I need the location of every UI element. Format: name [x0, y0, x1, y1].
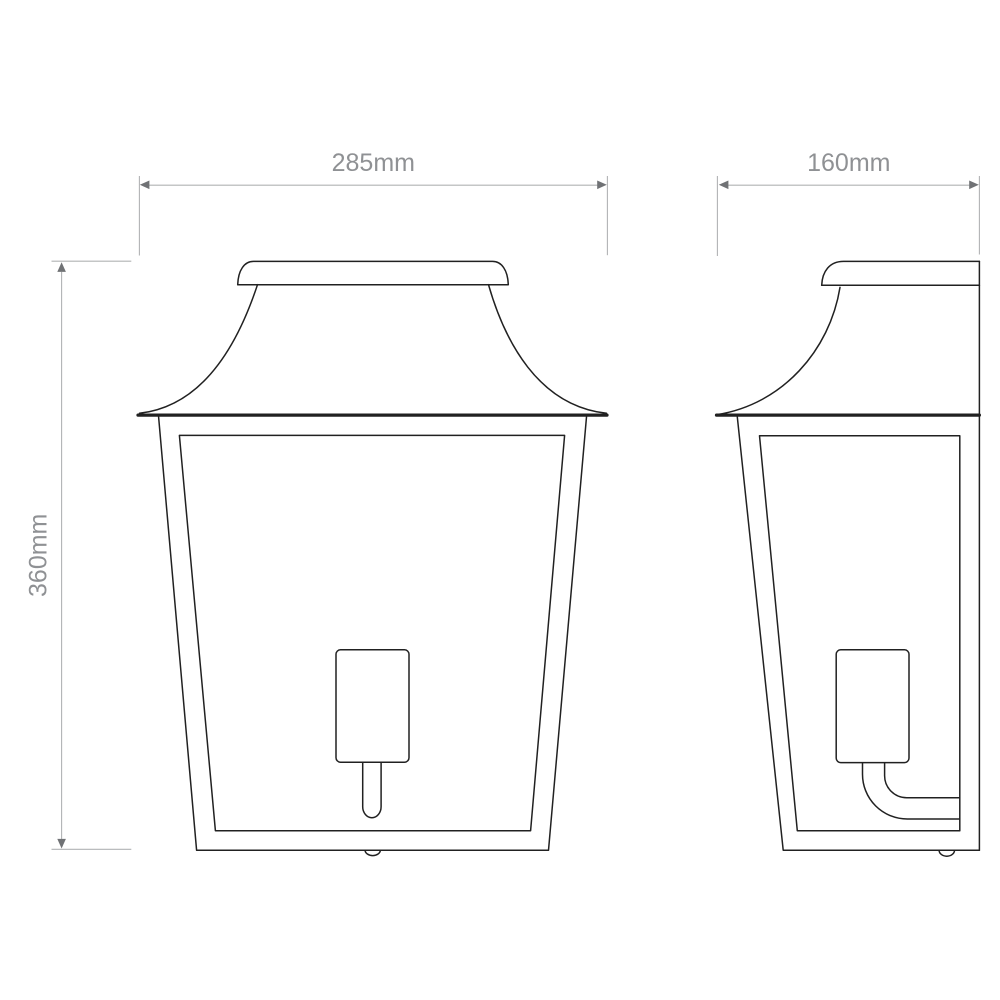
svg-text:285mm: 285mm [332, 149, 415, 177]
svg-text:360mm: 360mm [25, 514, 53, 597]
svg-text:160mm: 160mm [807, 149, 890, 177]
